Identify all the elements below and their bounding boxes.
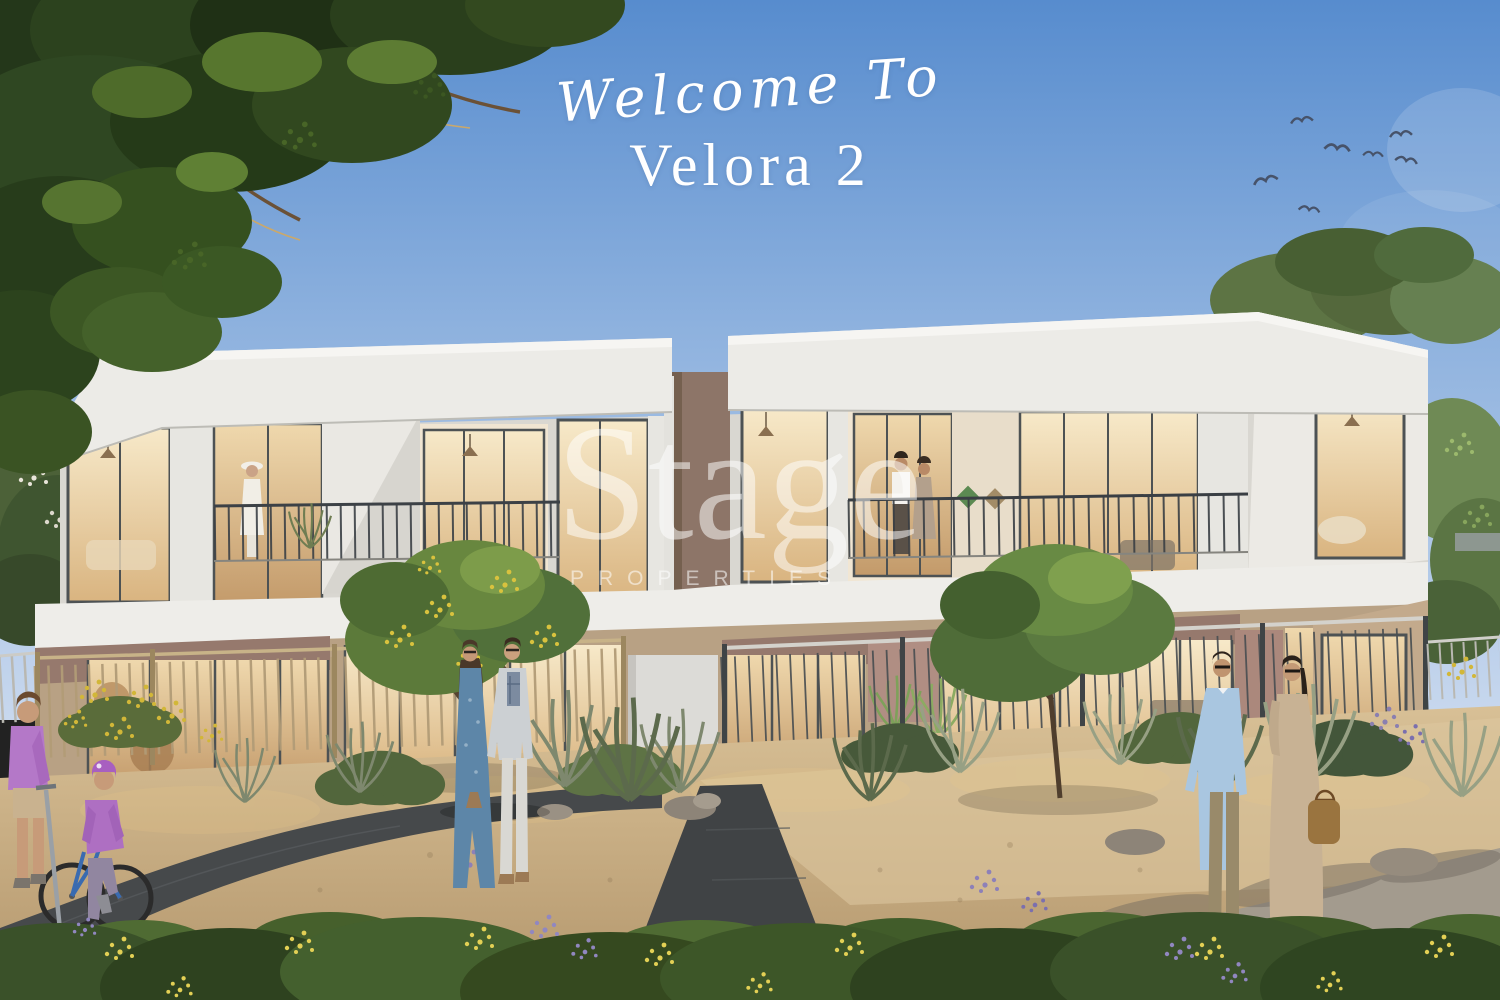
render-canvas: Welcome To Velora 2 Stage PROPERTIES [0,0,1500,1000]
handbag [1308,800,1340,844]
hero-text-block: Welcome To Velora 2 [0,58,1500,200]
